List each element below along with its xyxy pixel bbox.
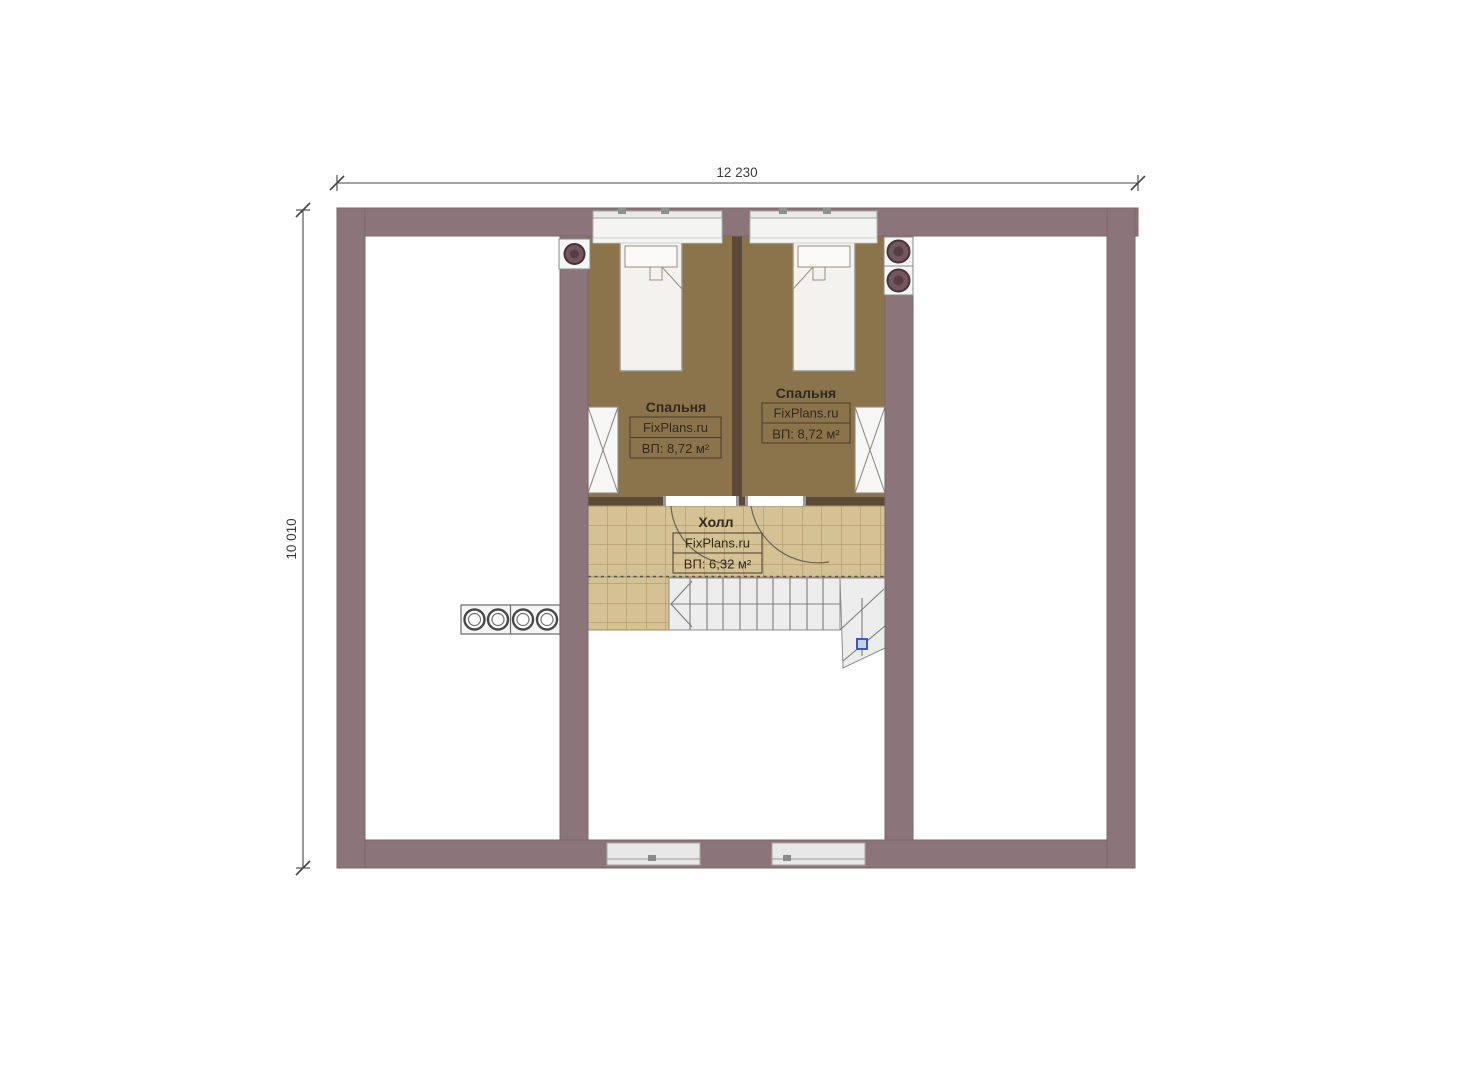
bedroom-right-area: ВП: 8,72 м² bbox=[772, 427, 840, 442]
wardrobe-right bbox=[855, 407, 885, 493]
wall-interior-left bbox=[560, 236, 588, 840]
wall-bottom bbox=[337, 840, 1135, 868]
wall-right bbox=[1107, 208, 1135, 868]
floor-plan-drawing: 12 230 10 010 bbox=[0, 0, 1474, 1080]
hall-title: Холл bbox=[698, 514, 733, 530]
bed-left bbox=[620, 241, 682, 371]
hall-area: ВП: 6,32 м² bbox=[684, 557, 752, 572]
window-top-left bbox=[593, 208, 722, 243]
vent-grille-block bbox=[461, 605, 560, 634]
bedroom-partition-wall bbox=[732, 236, 742, 497]
hall-tiles-lower bbox=[588, 577, 669, 630]
bedroom-right-title: Спальня bbox=[776, 385, 836, 401]
hall-brand: FixPlans.ru bbox=[685, 536, 750, 551]
bedroom-left-brand: FixPlans.ru bbox=[643, 420, 708, 435]
wall-left bbox=[337, 208, 365, 868]
dimension-left: 10 010 bbox=[284, 203, 310, 875]
bedroom-left-area: ВП: 8,72 м² bbox=[642, 441, 710, 456]
floor-plan-page: 12 230 10 010 bbox=[0, 0, 1474, 1080]
window-bottom-left bbox=[607, 843, 700, 865]
wall-interior-right bbox=[885, 236, 913, 840]
bed-right bbox=[793, 241, 855, 371]
stair-marker-blue bbox=[857, 639, 867, 649]
chimney-left bbox=[559, 239, 590, 269]
wall-top bbox=[337, 208, 1138, 236]
wardrobe-left bbox=[588, 407, 618, 493]
door-openings bbox=[663, 496, 806, 506]
window-top-right bbox=[750, 208, 877, 243]
chimney-right bbox=[884, 237, 913, 295]
bedroom-left-title: Спальня bbox=[646, 399, 706, 415]
dimension-top: 12 230 bbox=[330, 165, 1145, 191]
dimension-width-label: 12 230 bbox=[716, 165, 757, 180]
window-bottom-right bbox=[772, 843, 865, 865]
bedroom-right-brand: FixPlans.ru bbox=[773, 406, 838, 421]
dimension-height-label: 10 010 bbox=[284, 518, 299, 559]
